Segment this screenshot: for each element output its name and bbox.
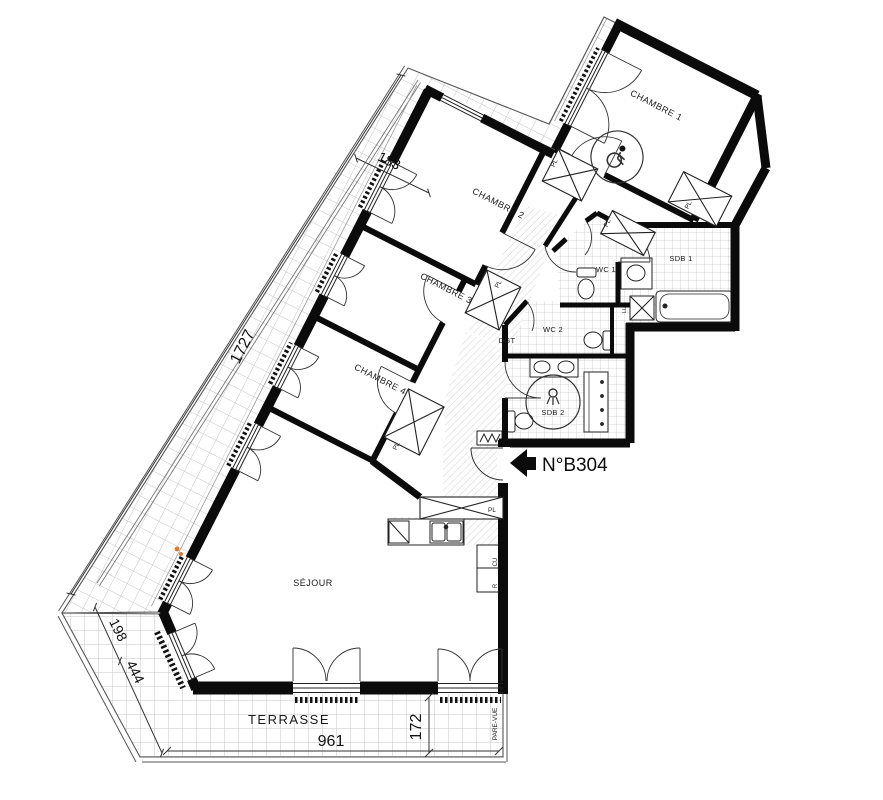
label-pare-vue: PARE-VUE: [492, 707, 499, 740]
bathtub: [656, 291, 733, 322]
label-wc1: WC 1: [596, 265, 616, 274]
dim-961: 961: [318, 733, 345, 750]
label-pl-kitchen: PL: [488, 507, 496, 514]
floor-plan-svg: CHAMBRE 1 CHAMBRE 2 CHAMBRE 3 CHAMBRE 4 …: [0, 0, 883, 800]
label-terrasse: TERRASSE: [248, 712, 330, 727]
shower-panel: [584, 372, 608, 432]
unit-tag: N°B304: [510, 449, 608, 477]
toilet-wc2: [584, 331, 612, 350]
label-sdb1: SDB 1: [669, 254, 692, 263]
label-sdb2: SDB 2: [541, 408, 564, 417]
floor-plan: CHAMBRE 1 CHAMBRE 2 CHAMBRE 3 CHAMBRE 4 …: [0, 0, 883, 800]
unit-number: N°B304: [542, 455, 608, 476]
washbasin-sdb1: [621, 258, 652, 289]
dim-172: 172: [408, 714, 425, 741]
label-cu: CU: [493, 558, 499, 567]
label-wc2: WC 2: [543, 325, 563, 334]
washbasin-sdb2: [530, 358, 578, 377]
label-sejour: SÉJOUR: [293, 578, 333, 588]
kitchen-counter: [388, 519, 464, 545]
label-r: R: [493, 583, 499, 588]
label-dgt: DGT: [499, 336, 516, 345]
label-ll: LL: [622, 307, 628, 313]
entrance-arrow-icon: [510, 449, 536, 477]
washing-machine: [630, 296, 654, 320]
toilet-wc1: [577, 268, 596, 299]
